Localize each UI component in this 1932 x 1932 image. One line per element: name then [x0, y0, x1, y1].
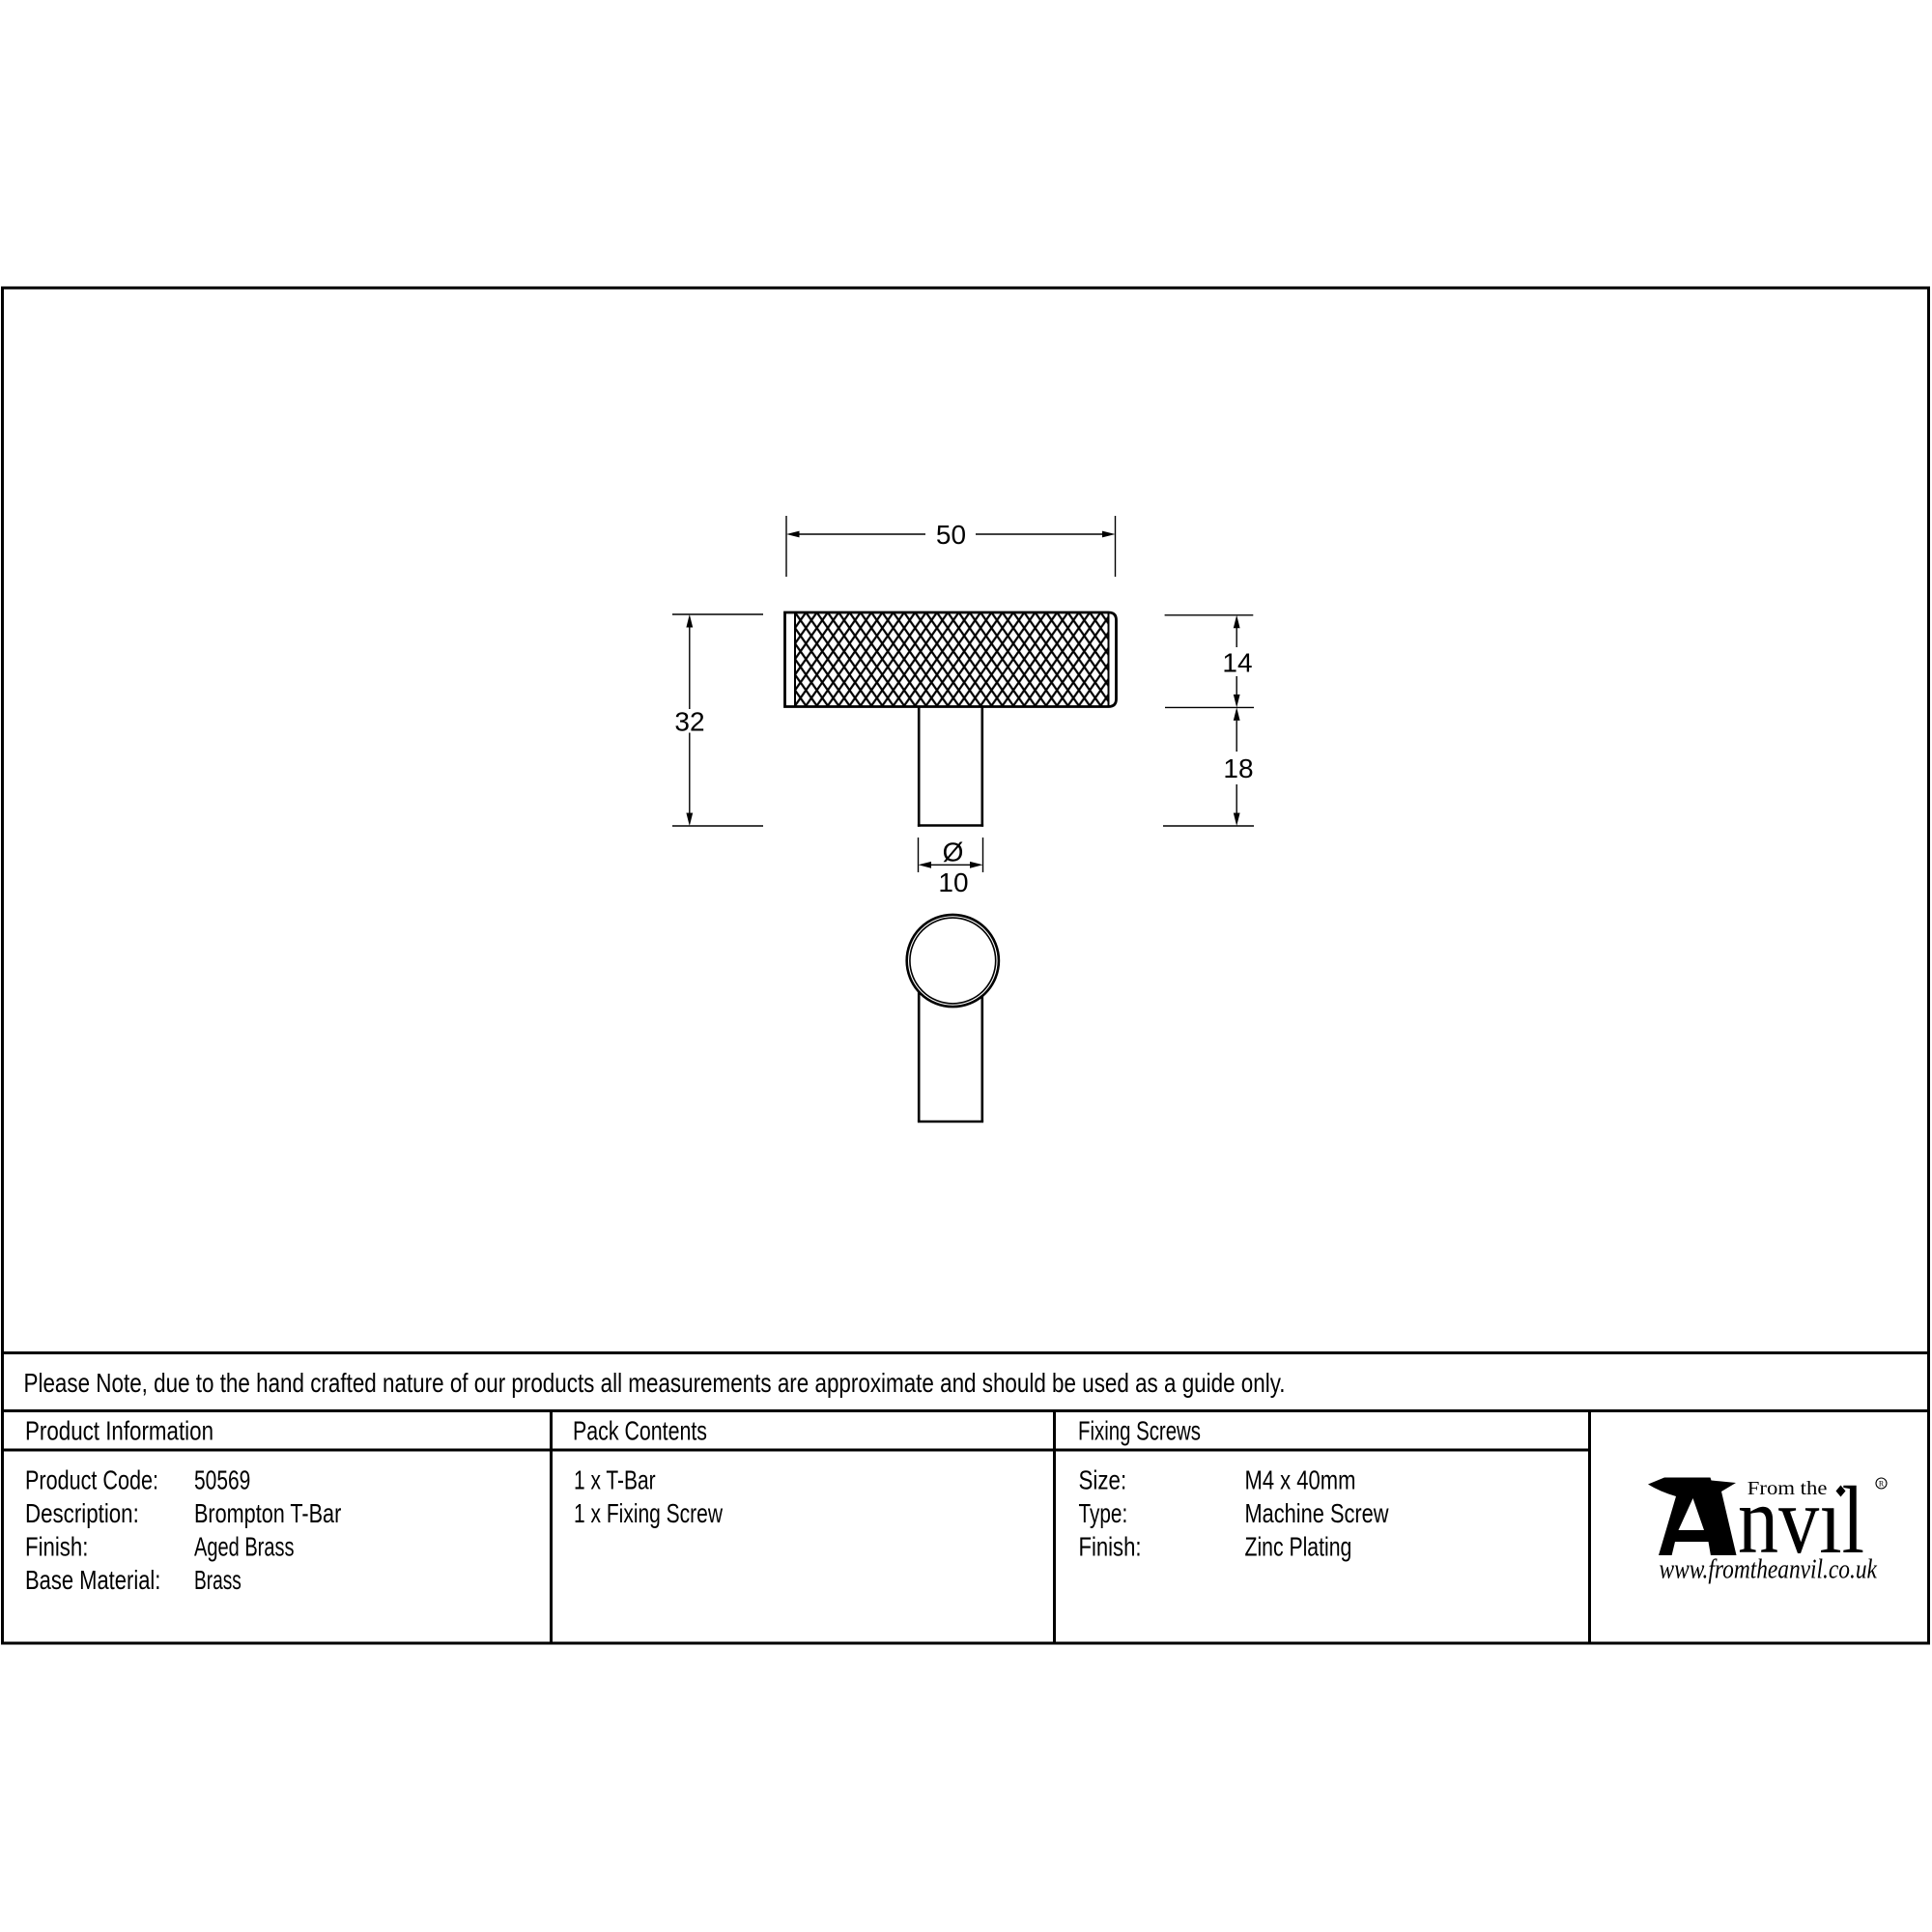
svg-text:10: 10 — [938, 867, 968, 897]
svg-text:Brompton T-Bar: Brompton T-Bar — [194, 1498, 341, 1528]
svg-text:M4 x 40mm: M4 x 40mm — [1245, 1465, 1356, 1495]
svg-text:Finish:: Finish: — [1079, 1532, 1142, 1562]
svg-text:Ø: Ø — [943, 838, 964, 867]
svg-text:Brass: Brass — [194, 1565, 241, 1595]
svg-text:1 x T-Bar: 1 x T-Bar — [574, 1465, 656, 1495]
svg-text:Aged Brass: Aged Brass — [194, 1532, 295, 1562]
svg-text:50569: 50569 — [194, 1465, 250, 1495]
svg-text:Product Information: Product Information — [25, 1416, 213, 1446]
svg-text:Product Code:: Product Code: — [25, 1465, 158, 1495]
svg-text:Type:: Type: — [1079, 1498, 1128, 1528]
svg-text:Finish:: Finish: — [25, 1532, 88, 1562]
svg-text:32: 32 — [674, 706, 704, 736]
svg-text:Pack Contents: Pack Contents — [573, 1416, 707, 1446]
svg-text:Description:: Description: — [25, 1498, 139, 1528]
svg-text:Zinc Plating: Zinc Plating — [1245, 1532, 1352, 1562]
svg-text:14: 14 — [1222, 648, 1252, 678]
svg-text:50: 50 — [936, 520, 966, 550]
svg-text:1 x Fixing Screw: 1 x Fixing Screw — [574, 1498, 724, 1528]
svg-text:18: 18 — [1223, 753, 1253, 783]
svg-text:Fixing Screws: Fixing Screws — [1078, 1416, 1201, 1446]
svg-text:Please Note, due to the hand c: Please Note, due to the hand crafted nat… — [24, 1368, 1286, 1398]
svg-text:R: R — [1879, 1480, 1885, 1489]
svg-text:Size:: Size: — [1079, 1465, 1127, 1495]
svg-text:Base Material:: Base Material: — [25, 1565, 160, 1595]
svg-text:Machine Screw: Machine Screw — [1245, 1498, 1390, 1528]
svg-text:www.fromtheanvil.co.uk: www.fromtheanvil.co.uk — [1660, 1554, 1878, 1585]
